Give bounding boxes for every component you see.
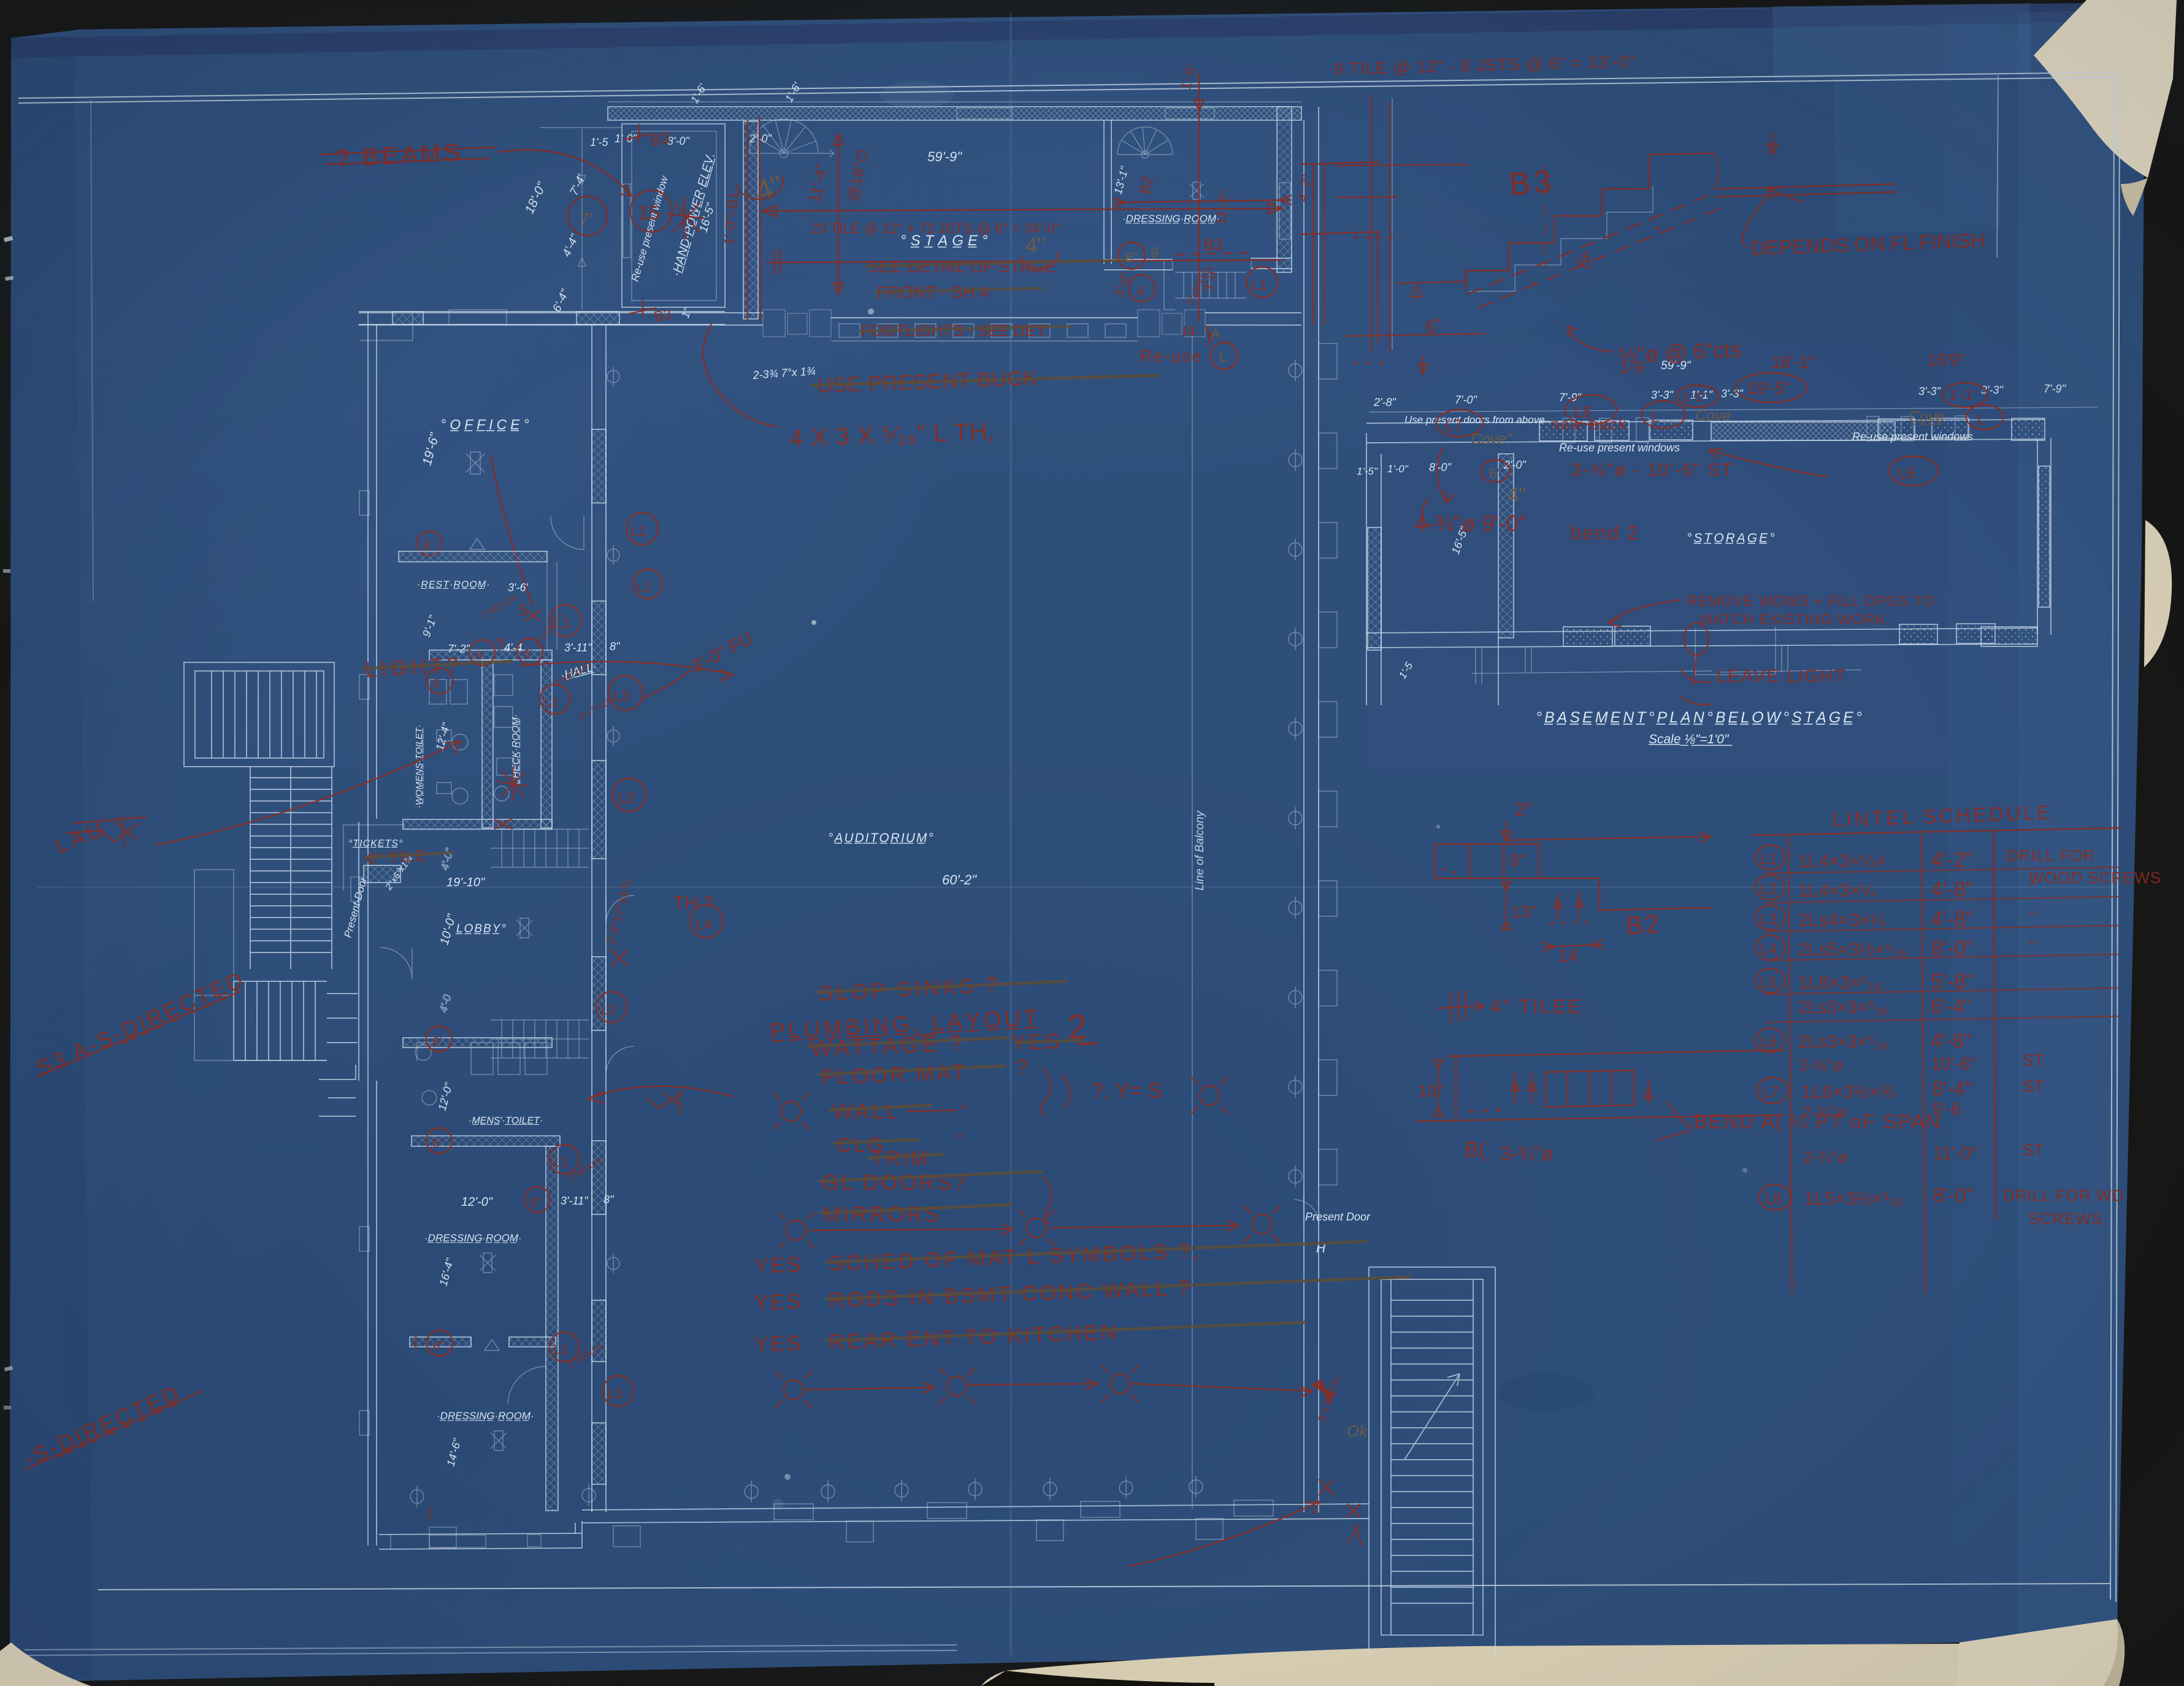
svg-text:Line of Balcony: Line of Balcony	[1194, 810, 1206, 891]
svg-text:14: 14	[1558, 946, 1578, 966]
svg-text:3-⅝"ø: 3-⅝"ø	[1798, 1056, 1843, 1075]
svg-text:12'-0": 12'-0"	[461, 1195, 493, 1209]
svg-text:·M̲E̲N̲S̲'·T̲O̲I̲L̲E̲T̲·: ·M̲E̲N̲S̲'·T̲O̲I̲L̲E̲T̲·	[469, 1116, 543, 1126]
svg-text:L1: L1	[637, 580, 651, 594]
svg-text:Use present doors from above: Use present doors from above	[1404, 414, 1545, 426]
svg-text:?: ?	[1016, 1056, 1027, 1079]
svg-text:7'-9": 7'-9"	[2044, 383, 2066, 395]
svg-text:6': 6'	[432, 1035, 442, 1049]
svg-text:L3: L3	[607, 1386, 622, 1401]
svg-text:19'-10": 19'-10"	[446, 876, 485, 889]
svg-text:2Ls4×3×¼: 2Ls4×3×¼	[1798, 910, 1886, 930]
svg-text:L6: L6	[1898, 464, 1915, 482]
svg-text:3'-11": 3'-11"	[561, 1195, 589, 1207]
svg-text:LEAVE LIGHT: LEAVE LIGHT	[1716, 666, 1847, 686]
svg-text:B3: B3	[1203, 236, 1223, 254]
svg-text:10": 10"	[1418, 1081, 1443, 1100]
svg-text:1L8×3×⁵₁₆: 1L8×3×⁵₁₆	[1798, 973, 1882, 993]
svg-text:bend 2: bend 2	[1570, 521, 1639, 544]
svg-text:·D̲R̲E̲S̲S̲I̲N̲G̲·R̲O̲O̲M̲·: ·D̲R̲E̲S̲S̲I̲N̲G̲·R̲O̲O̲M̲·	[437, 1410, 534, 1422]
svg-text:6'-4": 6'-4"	[1931, 995, 1971, 1017]
svg-text:2": 2"	[1515, 800, 1531, 820]
svg-text:Ok: Ok	[1347, 1422, 1368, 1440]
svg-text:L1: L1	[630, 523, 646, 539]
svg-text:L: L	[1977, 412, 1985, 427]
svg-text:°B̲A̲S̲E̲M̲E̲N̲T̲°P̲L̲A̲N̲°B̲E: °B̲A̲S̲E̲M̲E̲N̲T̲°P̲L̲A̲N̲°B̲E̲L̲O̲W̲°S̲…	[1536, 709, 1864, 726]
svg-text:4'-8": 4'-8"	[1931, 1029, 1971, 1052]
svg-text:1'-5: 1'-5	[590, 136, 608, 148]
svg-text:15: 15	[638, 202, 660, 224]
svg-text:": "	[2030, 908, 2036, 926]
svg-text:L6: L6	[1760, 1033, 1777, 1051]
svg-text:6": 6"	[1423, 315, 1444, 338]
svg-text:t4: t4	[1182, 323, 1195, 340]
svg-text:4": 4"	[1025, 234, 1045, 258]
svg-text:L2: L2	[618, 790, 635, 807]
svg-text:16'9": 16'9"	[1927, 350, 1965, 369]
svg-text:·W̲O̲M̲E̲N̲S̲·T̲O̲I̲L̲E̲T̲·: ·W̲O̲M̲E̲N̲S̲·T̲O̲I̲L̲E̲T̲·	[414, 724, 424, 808]
svg-text:3'-3": 3'-3"	[1918, 385, 1941, 397]
svg-text:?: ?	[494, 635, 505, 656]
svg-text:·D̲R̲E̲S̲S̲I̲N̲G̲·R̲O̲O̲M̲·: ·D̲R̲E̲S̲S̲I̲N̲G̲·R̲O̲O̲M̲·	[424, 1232, 522, 1244]
svg-text:SCREWS,: SCREWS,	[2029, 1209, 2107, 1228]
svg-text:6': 6'	[475, 649, 485, 662]
svg-text:L2: L2	[1760, 881, 1777, 898]
svg-text:C̰o̰v̰ḛ: C̰o̰v̰ḛ	[1909, 408, 1944, 426]
svg-text:Re-use present windows: Re-use present windows	[1852, 431, 1973, 443]
svg-text:3'-11": 3'-11"	[564, 642, 592, 654]
svg-text:": "	[960, 1102, 967, 1122]
svg-text:L4: L4	[695, 916, 712, 933]
svg-text:ST: ST	[2023, 1077, 2044, 1095]
svg-text:WOOD SCREWS: WOOD SCREWS	[2029, 868, 2161, 887]
svg-text:8": 8"	[610, 640, 621, 653]
svg-text:8'-0": 8'-0"	[1931, 937, 1974, 960]
svg-text:5: 5	[519, 601, 527, 619]
svg-text:WALL: WALL	[833, 1100, 900, 1124]
svg-text:6': 6'	[1489, 466, 1500, 481]
svg-text:4'-2": 4'-2"	[1931, 848, 1974, 872]
svg-text:3'-6': 3'-6'	[508, 581, 528, 594]
svg-text:1'-0": 1'-0"	[1387, 463, 1409, 475]
svg-text:2Ls3×3×⁵₁₆: 2Ls3×3×⁵₁₆	[1798, 1032, 1888, 1052]
svg-text:5'-8": 5'-8"	[1931, 970, 1974, 994]
svg-text:4'-8": 4'-8"	[1931, 878, 1974, 902]
svg-text:8'-0": 8'-0"	[1429, 461, 1452, 473]
svg-text:B3: B3	[649, 128, 672, 150]
svg-text:°A̲U̲D̲I̲T̲O̲R̲I̲U̲M̲°: °A̲U̲D̲I̲T̲O̲R̲I̲U̲M̲°	[828, 831, 935, 845]
svg-text:6': 6'	[523, 648, 532, 661]
svg-text:1L4×3×¼: 1L4×3×¼	[1798, 881, 1877, 901]
svg-text:YES: YES	[754, 1252, 803, 1278]
svg-text:3-¾"ø: 3-¾"ø	[1500, 1143, 1553, 1165]
svg-text:6: 6	[433, 677, 440, 691]
svg-text:S̲c̲a̲l̲e̲ ̲⅛̲"̲=̲1̲'̲0̲"̲: S̲c̲a̲l̲e̲ ̲⅛̲"̲=̲1̲'̲0̲"̲	[1648, 732, 1733, 746]
svg-text:YES: YES	[754, 1289, 803, 1315]
svg-text:": "	[2030, 878, 2036, 897]
svg-text:°O̲F̲F̲I̲C̲E̲°: °O̲F̲F̲I̲C̲E̲°	[440, 416, 533, 432]
svg-text:4" TILEE: 4" TILEE	[1490, 995, 1582, 1017]
svg-text:11'-0": 11'-0"	[1933, 1144, 1977, 1163]
svg-text:6': 6'	[432, 1137, 442, 1151]
svg-text:59'-9": 59'-9"	[927, 149, 962, 164]
svg-text:A: A	[1211, 326, 1220, 342]
svg-text:Cove: Cove	[1695, 407, 1731, 424]
svg-text:°S̲T̲O̲R̲A̲G̲E̲°: °S̲T̲O̲R̲A̲G̲E̲°	[1687, 531, 1776, 545]
svg-text:3'-3": 3'-3"	[1721, 388, 1744, 400]
svg-text:B2: B2	[1625, 909, 1662, 940]
svg-text:13": 13"	[1511, 902, 1536, 921]
svg-text:Re-use present windows: Re-use present windows	[1559, 442, 1680, 454]
svg-text:": "	[957, 1130, 963, 1149]
svg-text:L̲O̲B̲B̲Y̲°: L̲O̲B̲B̲Y̲°	[455, 922, 507, 935]
svg-text:2Ls5×3½×⁵₁₆: 2Ls5×3½×⁵₁₆	[1798, 940, 1906, 960]
svg-text:L2: L2	[601, 1002, 616, 1017]
svg-text:8'-4": 8'-4"	[1932, 1077, 1972, 1100]
svg-text:23 TILE @ 12" + 72 JSTS @ 6" =: 23 TILE @ 12" + 72 JSTS @ 6" = 34'-0"	[811, 220, 1060, 236]
svg-text:L1: L1	[554, 1155, 568, 1170]
svg-text:18'-1": 18'-1"	[1771, 353, 1815, 372]
svg-text:3'-3": 3'-3"	[1651, 389, 1674, 401]
svg-text:L1: L1	[554, 1343, 568, 1357]
svg-text:4": 4"	[1508, 483, 1526, 506]
svg-text:B(: B(	[1465, 1138, 1486, 1162]
svg-text:MATCH EXISTING WORK: MATCH EXISTING WORK	[1700, 611, 1886, 628]
svg-text:Cove": Cove"	[1471, 431, 1512, 448]
svg-text:L7: L7	[1762, 1084, 1779, 1101]
svg-text:2Ls3×3×⁵₁₆: 2Ls3×3×⁵₁₆	[1798, 998, 1888, 1017]
svg-text:2-¾"ø: 2-¾"ø	[1803, 1148, 1848, 1167]
svg-text:4: 4	[1136, 283, 1144, 299]
svg-text:L1: L1	[1252, 277, 1268, 293]
svg-text:MIRRORS: MIRRORS	[823, 1203, 941, 1227]
svg-text:4-¾"ø 9'-0": 4-¾"ø 9'-0"	[1414, 511, 1527, 536]
svg-text:·R̲E̲S̲T̲·R̲O̲O̲M̲·: ·R̲E̲S̲T̲·R̲O̲O̲M̲·	[417, 580, 490, 590]
svg-text:Present Door: Present Door	[1305, 1211, 1371, 1223]
svg-text:19'-5": 19'-5"	[1747, 378, 1790, 397]
svg-text:Re-use: Re-use	[1140, 347, 1202, 366]
svg-text:60'-2": 60'-2"	[942, 872, 977, 887]
svg-text:TH ?: TH ?	[673, 893, 713, 913]
svg-text:L6: L6	[1574, 402, 1592, 421]
svg-text:2'-8": 2'-8"	[1373, 396, 1397, 408]
svg-text:4'-8": 4'-8"	[1931, 907, 1974, 931]
svg-text:1L6×3½×⅜: 1L6×3½×⅜	[1802, 1082, 1896, 1102]
svg-text:REMOVE WDWS + FILL OPGS TO: REMOVE WDWS + FILL OPGS TO	[1687, 593, 1935, 610]
svg-text:L1: L1	[545, 695, 559, 710]
svg-text:9: 9	[1151, 245, 1159, 261]
svg-text:7'-0": 7'-0"	[1455, 394, 1477, 406]
svg-text:DRILL FOR WD: DRILL FOR WD	[2003, 1186, 2124, 1205]
svg-text:DRILL FOR: DRILL FOR	[2007, 846, 2095, 865]
svg-text:6": 6"	[531, 1196, 542, 1209]
svg-text:8'-0": 8'-0"	[1933, 1184, 1974, 1206]
svg-text:ST: ST	[2023, 1141, 2044, 1159]
svg-text:L: L	[1651, 408, 1660, 426]
svg-text:L4: L4	[1760, 941, 1777, 958]
svg-text:°T̲I̲C̲K̲E̲T̲S̲°: °T̲I̲C̲K̲E̲T̲S̲°	[348, 838, 403, 849]
svg-text:1'-1": 1'-1"	[1682, 390, 1707, 404]
svg-text:?, Y= S: ?, Y= S	[1092, 1079, 1162, 1103]
svg-text:L3: L3	[1760, 911, 1777, 928]
svg-text:YES: YES	[754, 1331, 803, 1357]
svg-text:3-⅝"ø - 10'-6" ST: 3-⅝"ø - 10'-6" ST	[1571, 460, 1733, 480]
svg-text:ST: ST	[2023, 1051, 2044, 1070]
svg-text:1L4×3×¼×: 1L4×3×¼×	[1798, 851, 1887, 872]
svg-text:BEND A( ¼ PT oF SPAN: BEND A( ¼ PT oF SPAN	[1694, 1110, 1942, 1133]
svg-text:·D̲R̲E̲S̲S̲I̲N̲G̲·R̲O̲O̲M̲·: ·D̲R̲E̲S̲S̲I̲N̲G̲·R̲O̲O̲M̲·	[1122, 213, 1220, 224]
svg-text:B3: B3	[1508, 164, 1555, 202]
svg-text:": "	[2030, 937, 2036, 956]
svg-text:8": 8"	[1510, 851, 1526, 870]
svg-text:7′: 7′	[579, 210, 593, 230]
svg-text:6": 6"	[1125, 250, 1138, 266]
svg-text:L7: L7	[1445, 417, 1462, 434]
svg-text:1'-5": 1'-5"	[1357, 466, 1378, 477]
svg-text:B3: B3	[653, 305, 672, 324]
svg-text:1'-1": 1'-1"	[1949, 387, 1977, 403]
svg-text:1L5×3½×⁵₁₆: 1L5×3½×⁵₁₆	[1804, 1189, 1903, 1209]
svg-text:L1: L1	[1760, 851, 1777, 868]
svg-text:10'-6": 10'-6"	[1931, 1054, 1976, 1074]
svg-text:1-9: 1-9	[1619, 358, 1644, 377]
svg-text:L5: L5	[1760, 974, 1777, 991]
svg-text:L8: L8	[1764, 1190, 1782, 1208]
svg-text:L3: L3	[613, 688, 630, 705]
svg-text:L: L	[1219, 349, 1227, 365]
svg-text:6": 6"	[433, 1339, 444, 1353]
